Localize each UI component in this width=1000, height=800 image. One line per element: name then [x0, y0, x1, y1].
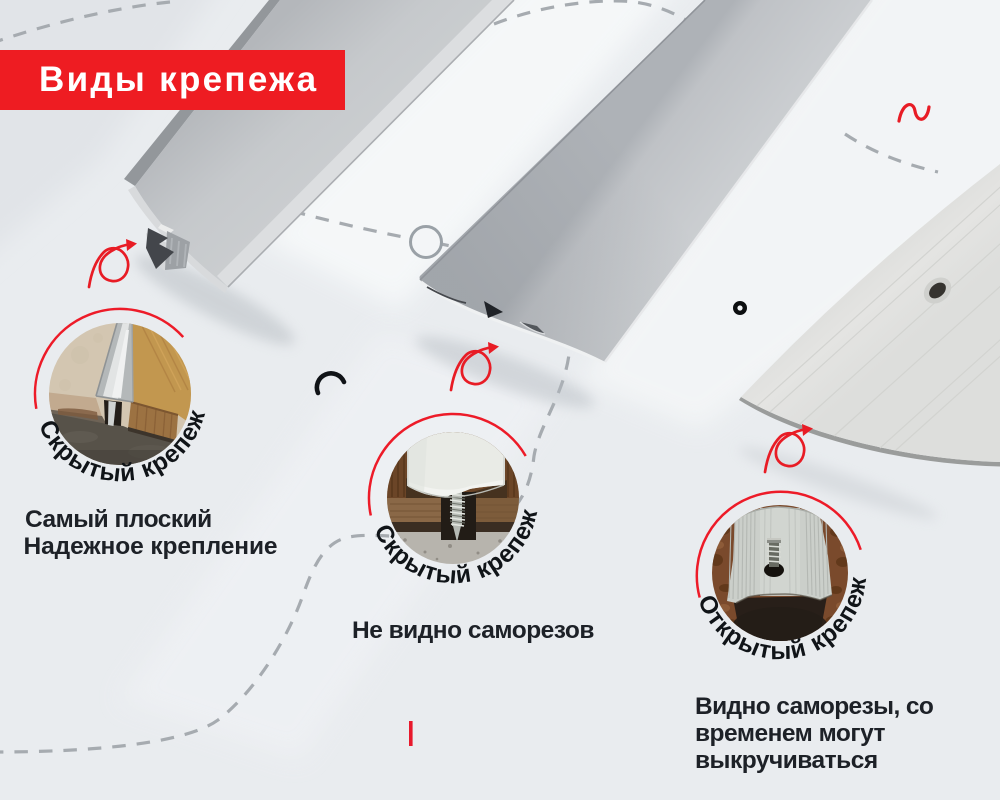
- svg-text:Надежное крепление: Надежное крепление: [24, 533, 278, 560]
- svg-text:Не видно саморезов: Не видно саморезов: [352, 617, 594, 644]
- svg-text:временем могут: временем могут: [695, 720, 886, 747]
- svg-text:выкручиваться: выкручиваться: [695, 747, 878, 774]
- svg-text:Виды крепежа: Виды крепежа: [39, 60, 318, 99]
- svg-text:Видно саморезы, со: Видно саморезы, со: [695, 693, 934, 720]
- svg-text:Самый плоский: Самый плоский: [25, 506, 212, 533]
